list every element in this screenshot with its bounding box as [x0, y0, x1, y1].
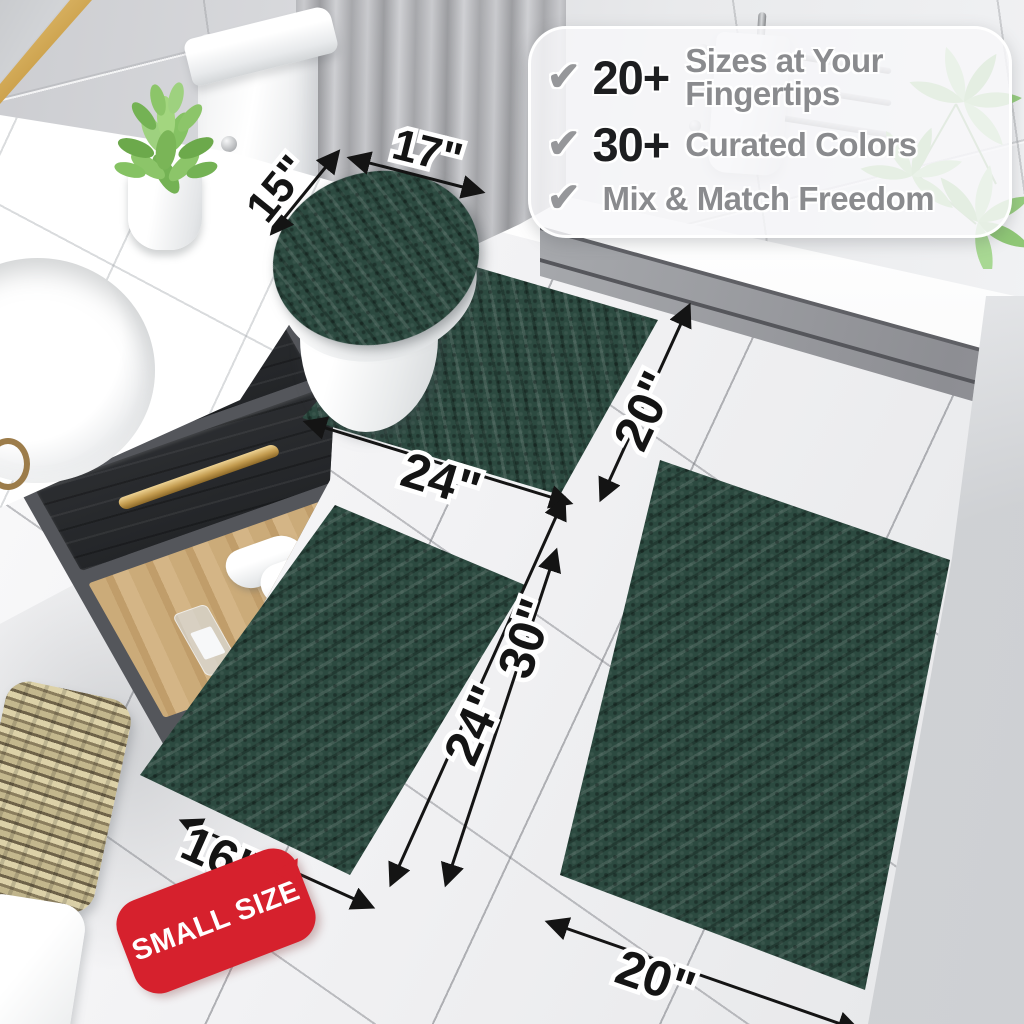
bathroom-product-photo: 17" 15" 24" 20" 30" 24" 16" 20" ✔ 20+ Si… — [0, 0, 1024, 1024]
feature-label: Curated Colors — [685, 128, 916, 161]
potted-plant — [96, 78, 236, 208]
drawer-handle — [116, 443, 281, 511]
stat-value: 30+ — [593, 121, 670, 168]
check-icon: ✔ — [547, 57, 581, 97]
stat-value: 20+ — [593, 54, 670, 101]
feature-callout-card: ✔ 20+ Sizes at Your Fingertips ✔ 30+ Cur… — [528, 26, 1012, 238]
feature-row: ✔ Mix & Match Freedom — [547, 178, 995, 218]
check-icon: ✔ — [547, 178, 581, 218]
feature-row: ✔ 20+ Sizes at Your Fingertips — [547, 44, 995, 110]
feature-label: Sizes at Your Fingertips — [685, 44, 995, 110]
plant-leaves — [113, 81, 220, 198]
feature-label: Mix & Match Freedom — [603, 182, 935, 215]
feature-row: ✔ 30+ Curated Colors — [547, 121, 995, 168]
check-icon: ✔ — [547, 124, 581, 164]
bottle-label — [190, 626, 226, 660]
